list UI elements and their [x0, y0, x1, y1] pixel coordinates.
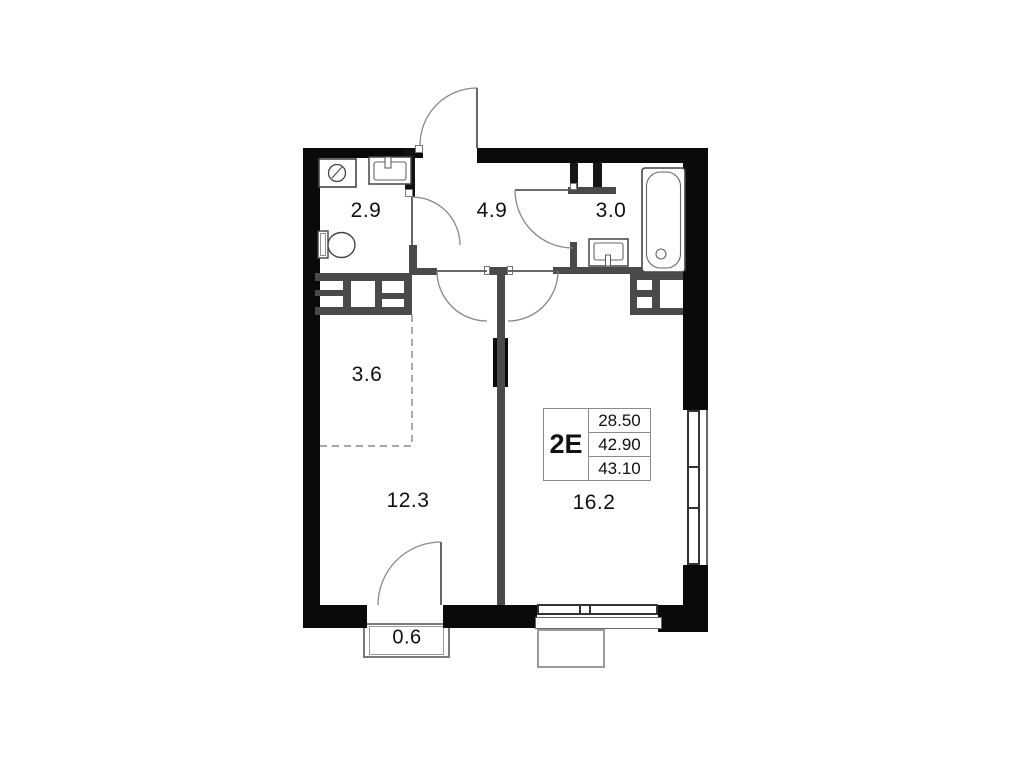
plan-linework — [0, 0, 1024, 768]
unit-area-value-1: 28.50 — [589, 409, 650, 433]
sink-icon — [589, 239, 628, 266]
bathroom-door-arc — [515, 190, 573, 248]
toilet-icon — [318, 231, 355, 258]
bedroom-door-arc — [437, 271, 487, 321]
washing-machine-icon — [319, 159, 356, 187]
sink-icon — [369, 157, 411, 184]
room-area-label-wardrobe-zone: 3.6 — [352, 363, 383, 387]
room-area-label-bathroom: 3.0 — [596, 199, 627, 223]
bathroom-small-door-arc — [412, 197, 460, 245]
floor-plan-canvas: 2.9 4.9 3.0 3.6 12.3 16.2 0.6 2E 28.50 4… — [0, 0, 1024, 768]
unit-area-value-3: 43.10 — [589, 457, 650, 480]
door-leaves — [412, 88, 573, 605]
balcony-door-arc — [378, 542, 441, 605]
living-door-arc — [508, 271, 558, 321]
room-area-label-hallway: 4.9 — [477, 199, 508, 223]
room-area-label-bathroom-small: 2.9 — [351, 199, 382, 223]
bathtub-icon — [642, 168, 685, 272]
unit-info-box: 2E 28.50 42.90 43.10 — [543, 408, 651, 481]
entrance-door-arc — [420, 88, 477, 145]
room-area-label-living-room: 16.2 — [573, 491, 616, 515]
unit-label: 2E — [544, 409, 589, 480]
unit-area-value-2: 42.90 — [589, 433, 650, 457]
room-area-label-bedroom: 12.3 — [387, 489, 430, 513]
room-area-label-balcony: 0.6 — [392, 627, 421, 650]
